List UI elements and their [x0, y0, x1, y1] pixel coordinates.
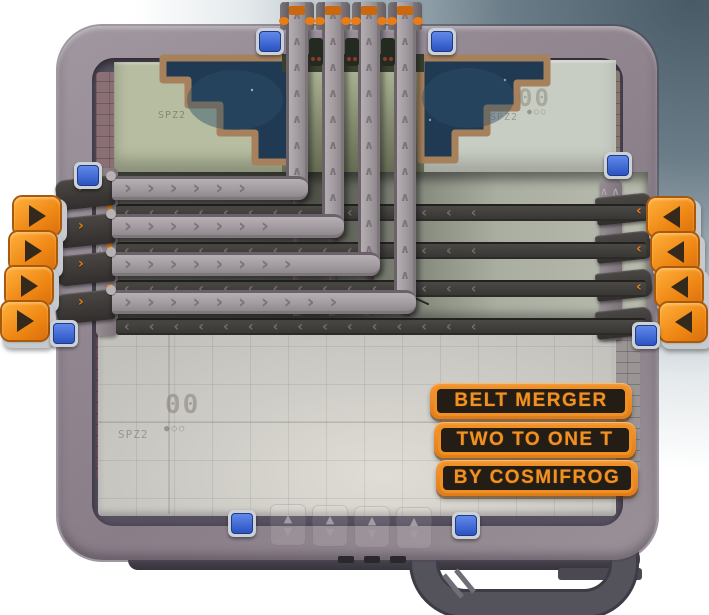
return-belt-entry-chevron: ‹	[636, 203, 642, 219]
output-cap-bar	[289, 6, 305, 15]
toggle-left-lower[interactable]	[50, 320, 78, 347]
arrow-right-icon	[21, 275, 38, 297]
vertical-output-belt: ∧ ∧ ∧ ∧ ∧ ∧ ∧ ∧ ∧ ∧ ∧ ∧	[394, 2, 416, 314]
sign-label: BY COSMIFROG	[454, 467, 621, 489]
arrow-left-icon	[675, 311, 692, 333]
feed-belt-row: ››››››››	[112, 252, 380, 276]
sign-face: BELT MERGER	[434, 386, 628, 416]
return-belt-row: ‹‹‹‹‹‹‹‹‹‹‹‹‹‹‹	[116, 318, 646, 335]
upper-right-stamp: SPZ2	[490, 112, 518, 123]
arrow-left-icon	[667, 241, 684, 263]
arrow-right-icon	[17, 310, 34, 332]
bottom-vent	[364, 556, 380, 563]
vertical-output-belt: ∧ ∧ ∧ ∧ ∧ ∧ ∧ ∧ ∧ ∧	[358, 2, 380, 276]
lift-down-icon: ▼	[368, 527, 376, 540]
rim-slot	[381, 38, 395, 66]
sign-face: TWO TO ONE T	[438, 425, 632, 455]
rim-slot	[309, 38, 323, 66]
left-input-3[interactable]	[6, 267, 52, 305]
arrow-left-icon	[663, 206, 680, 228]
lift-down-icon: ▼	[284, 525, 292, 538]
bottom-lift-3[interactable]: ▲▼	[354, 506, 390, 548]
arrow-right-icon	[29, 205, 46, 227]
lower-dots: ●○○	[164, 424, 186, 434]
output-cap-post	[378, 2, 386, 30]
belt-joint-knob	[106, 247, 116, 257]
lift-up-icon: ▲	[284, 512, 292, 525]
belt-support-post	[401, 314, 410, 316]
blueprint-canvas: SPZ2 00 SPZ2 ●○○ 00 ●○○ SPZ2 ∧ ∧ ∧ ∧ ∧ ∧…	[0, 0, 709, 615]
blue-button-face	[431, 31, 453, 52]
rim-slot-light	[317, 57, 321, 61]
sign-label: TWO TO ONE T	[457, 429, 614, 451]
toggle-top-right[interactable]	[428, 28, 456, 55]
feed-belt-entry-chevron: ›	[78, 256, 84, 272]
toggle-left-upper[interactable]	[74, 162, 102, 189]
toggle-top-left[interactable]	[256, 28, 284, 55]
output-cap-post	[414, 2, 422, 30]
lower-stamp: SPZ2	[118, 428, 149, 441]
belt-joint-knob	[106, 285, 116, 295]
feed-belt-row: ››››››	[112, 176, 308, 200]
return-belt-entry-chevron: ‹	[636, 279, 642, 295]
right-input-2[interactable]	[652, 233, 698, 271]
toggle-bottom-left[interactable]	[228, 510, 256, 537]
toggle-right-upper[interactable]	[604, 152, 632, 179]
blue-button-face	[455, 515, 477, 536]
output-cap-post	[306, 2, 314, 30]
belt-joint-knob	[106, 171, 116, 181]
left-input-4[interactable]	[2, 302, 48, 340]
feed-belt-entry-chevron: ›	[78, 294, 84, 310]
blue-button-face	[259, 31, 281, 52]
rim-slot-light	[389, 57, 393, 61]
blue-button-face	[635, 325, 657, 346]
sign-belt-merger[interactable]: BELT MERGER	[430, 383, 632, 419]
lift-up-icon: ▲	[368, 514, 376, 527]
lift-down-icon: ▼	[326, 526, 334, 539]
bottom-lift-4[interactable]: ▲▼	[396, 507, 432, 549]
lower-number: 00	[165, 390, 200, 420]
feed-belt-entry-chevron: ›	[78, 218, 84, 234]
output-cap-dot	[387, 17, 397, 25]
right-input-4[interactable]	[660, 303, 706, 341]
output-cap-dot	[377, 17, 387, 25]
lift-down-icon: ▼	[410, 528, 418, 541]
rim-slot-light	[383, 57, 387, 61]
upper-right-dots: ●○○	[527, 107, 547, 116]
bottom-vent	[338, 556, 354, 563]
output-cap-bar	[361, 6, 377, 15]
right-input-3[interactable]	[656, 268, 702, 306]
blue-button-face	[77, 165, 99, 186]
sign-two-to-one[interactable]: TWO TO ONE T	[434, 422, 636, 458]
toggle-bottom-right[interactable]	[452, 512, 480, 539]
sign-face: BY COSMIFROG	[440, 463, 634, 493]
blue-button-face	[53, 323, 75, 344]
lift-up-icon: ▲	[326, 513, 334, 526]
rim-slot-light	[311, 57, 315, 61]
vertical-output-belt: ∧ ∧ ∧ ∧ ∧ ∧ ∧	[286, 2, 308, 200]
vertical-output-belt: ∧ ∧ ∧ ∧ ∧ ∧ ∧ ∧ ∧	[322, 2, 344, 238]
rim-slot-light	[347, 57, 351, 61]
feed-belt-row: ›››››››	[112, 214, 344, 238]
output-cap-bar	[325, 6, 341, 15]
arrow-left-icon	[671, 276, 688, 298]
output-cap-dot	[351, 17, 361, 25]
output-cap-post	[280, 2, 288, 30]
output-cap-dot	[315, 17, 325, 25]
right-input-1[interactable]	[648, 198, 694, 236]
bottom-vent	[390, 556, 406, 563]
output-cap-post	[352, 2, 360, 30]
output-cap-bar	[397, 6, 413, 15]
lift-up-icon: ▲	[410, 515, 418, 528]
output-cap-post	[342, 2, 350, 30]
feed-belt-row: ››››››››››	[112, 290, 416, 314]
bottom-lift-2[interactable]: ▲▼	[312, 505, 348, 547]
rim-slot-light	[353, 57, 357, 61]
sign-label: BELT MERGER	[454, 390, 607, 412]
sign-author[interactable]: BY COSMIFROG	[436, 460, 638, 496]
blue-button-face	[607, 155, 629, 176]
blue-button-face	[231, 513, 253, 534]
belt-joint-knob	[106, 209, 116, 219]
output-cap-dot	[341, 17, 351, 25]
bottom-lift-1[interactable]: ▲▼	[270, 504, 306, 546]
upper-left-stamp: SPZ2	[158, 110, 186, 121]
left-input-2[interactable]	[10, 232, 56, 270]
return-belt-entry-chevron: ‹	[636, 241, 642, 257]
arrow-right-icon	[25, 240, 42, 262]
rim-slot	[345, 38, 359, 66]
output-cap-post	[388, 2, 396, 30]
output-cap-dot	[413, 17, 423, 25]
output-cap-dot	[279, 17, 289, 25]
left-input-1[interactable]	[14, 197, 60, 235]
output-cap-dot	[305, 17, 315, 25]
output-cap-post	[316, 2, 324, 30]
left-input-ramp	[55, 251, 116, 287]
toggle-right-lower[interactable]	[632, 322, 660, 349]
